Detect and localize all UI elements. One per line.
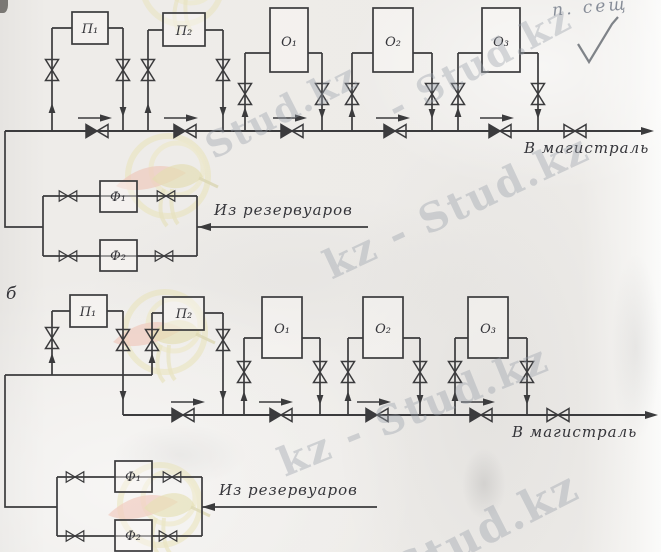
pump-label: П₁ [79, 305, 97, 320]
flow-direction-arrow [171, 398, 205, 405]
reservoir-flow-arrow [202, 503, 215, 511]
process-unit-o2: О₂ [342, 297, 427, 415]
flow-direction-arrow [259, 398, 293, 405]
from-reservoirs-caption: Из резервуаров [213, 201, 353, 219]
flow-down-arrow [220, 391, 227, 401]
return-pipe [5, 375, 57, 507]
pump-unit-p2: П₂ [146, 297, 230, 415]
flow-direction-arrow [357, 398, 391, 405]
filter-label: Ф₁ [110, 190, 126, 205]
flow-up-arrow [452, 391, 459, 401]
unit-label: О₃ [480, 322, 496, 337]
process-unit-o2: О₂ [346, 8, 439, 131]
flow-down-arrow [120, 107, 127, 117]
pump-station-schematic: П₁ П₂ О₁ [0, 0, 661, 552]
process-unit-o1: О₁ [238, 297, 327, 415]
pencil-checkmark-icon [578, 17, 618, 62]
from-reservoirs-caption: Из резервуаров [218, 481, 358, 499]
filter-f1: Ф₁ [66, 461, 181, 492]
flow-direction-arrow [164, 114, 198, 121]
unit-label: О₂ [375, 322, 391, 337]
flow-up-arrow [455, 107, 462, 117]
flow-up-arrow [349, 107, 356, 117]
pump-label: П₂ [175, 307, 193, 322]
flow-down-arrow [220, 107, 227, 117]
pump-label: П₂ [175, 24, 193, 39]
pump-unit-p2: П₂ [142, 13, 230, 131]
flow-down-arrow [120, 391, 127, 401]
main-pipe-arrow [641, 127, 654, 135]
pump-unit-p1: П₁ [46, 12, 130, 131]
flow-down-arrow [417, 395, 424, 405]
pump-unit-p1: П₁ [46, 295, 130, 415]
scheme-b-label: б [6, 284, 17, 304]
main-pipe-arrow [645, 411, 658, 419]
reservoir-flow-arrow [198, 223, 211, 231]
return-pipe [5, 131, 43, 227]
flow-down-arrow [317, 395, 324, 405]
filter-label: Ф₂ [110, 249, 126, 264]
flow-up-arrow [145, 103, 152, 113]
flow-direction-arrow [273, 114, 307, 121]
to-main-caption: В магистраль [511, 423, 637, 441]
filter-f1: Ф₁ [59, 181, 175, 212]
filter-label: Ф₁ [125, 470, 141, 485]
to-main-caption: В магистраль [523, 139, 649, 157]
flow-direction-arrow [461, 398, 495, 405]
flow-down-arrow [429, 109, 436, 119]
flow-up-arrow [345, 391, 352, 401]
unit-label: О₁ [281, 35, 297, 50]
flow-up-arrow [49, 103, 56, 113]
process-unit-o3: О₃ [449, 297, 534, 415]
process-unit-o3: О₃ [452, 8, 545, 131]
flow-down-arrow [524, 395, 531, 405]
flow-direction-arrow [480, 114, 514, 121]
flow-direction-arrow [376, 114, 410, 121]
pump-label: П₁ [81, 22, 99, 37]
unit-label: О₁ [274, 322, 290, 337]
scheme-b: б П₁ П₂ [5, 284, 658, 551]
scheme-a: П₁ П₂ О₁ [5, 8, 654, 271]
unit-label: О₂ [385, 35, 401, 50]
filter-label: Ф₂ [125, 529, 141, 544]
filter-f2: Ф₂ [59, 240, 173, 271]
flow-down-arrow [319, 109, 326, 119]
flow-direction-arrow [78, 114, 112, 121]
flow-up-arrow [242, 107, 249, 117]
process-unit-o1: О₁ [239, 8, 329, 131]
flow-up-arrow [149, 353, 156, 363]
scanned-schematic-page: П₁ П₂ О₁ [0, 0, 661, 552]
flow-up-arrow [49, 353, 56, 363]
flow-down-arrow [535, 109, 542, 119]
unit-label: О₃ [493, 35, 509, 50]
flow-up-arrow [241, 391, 248, 401]
